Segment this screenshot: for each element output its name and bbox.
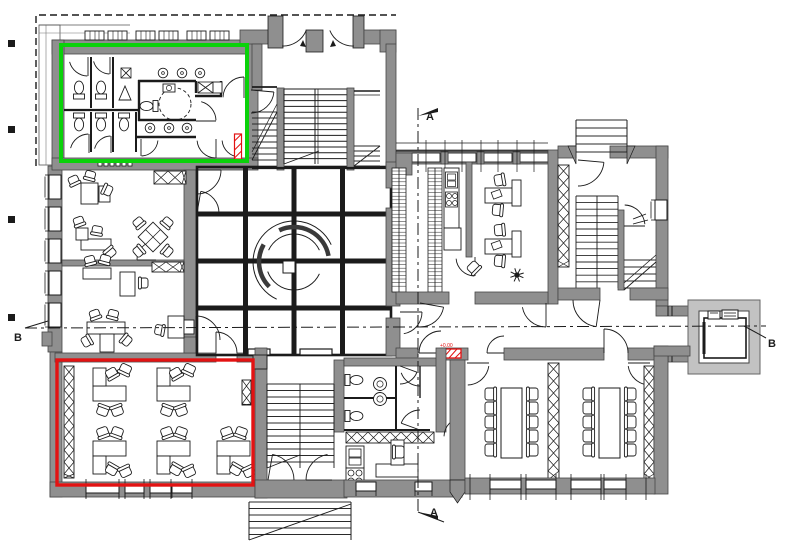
svg-text:B: B: [14, 332, 22, 344]
svg-text:B: B: [768, 338, 776, 350]
svg-text:A: A: [426, 111, 434, 123]
